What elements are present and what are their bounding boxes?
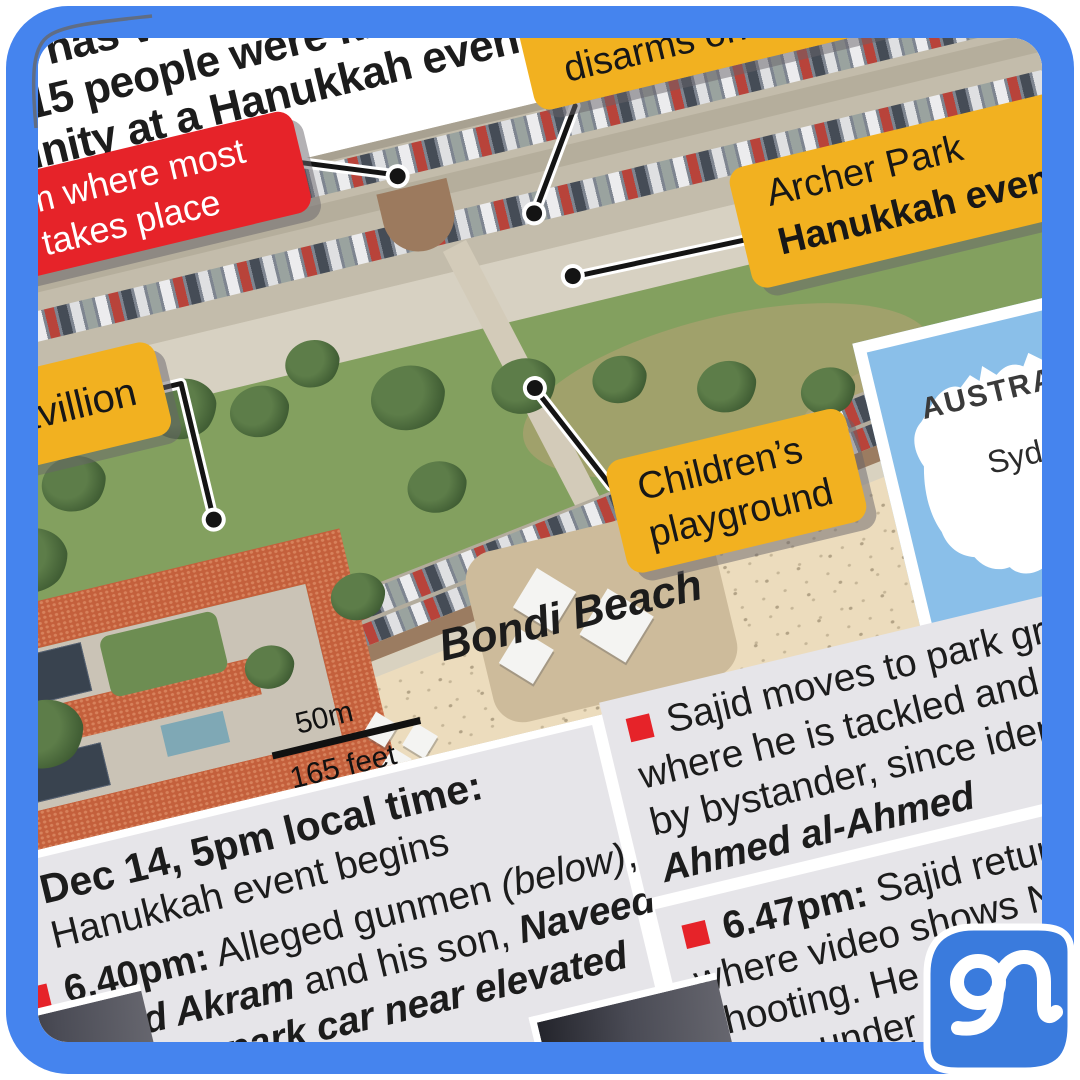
card-corner-edge [14,10,184,160]
content-window: has vowed 15 people were killed unity at… [38,38,1042,1042]
red-bullet-icon [626,713,655,742]
gn-logo [920,920,1078,1078]
rotated-infographic: has vowed 15 people were killed unity at… [38,38,1042,1042]
callout-pavillion-label: Pavillion [38,369,141,449]
red-bullet-icon [681,920,710,949]
infographic-card: has vowed 15 people were killed unity at… [0,0,1080,1080]
